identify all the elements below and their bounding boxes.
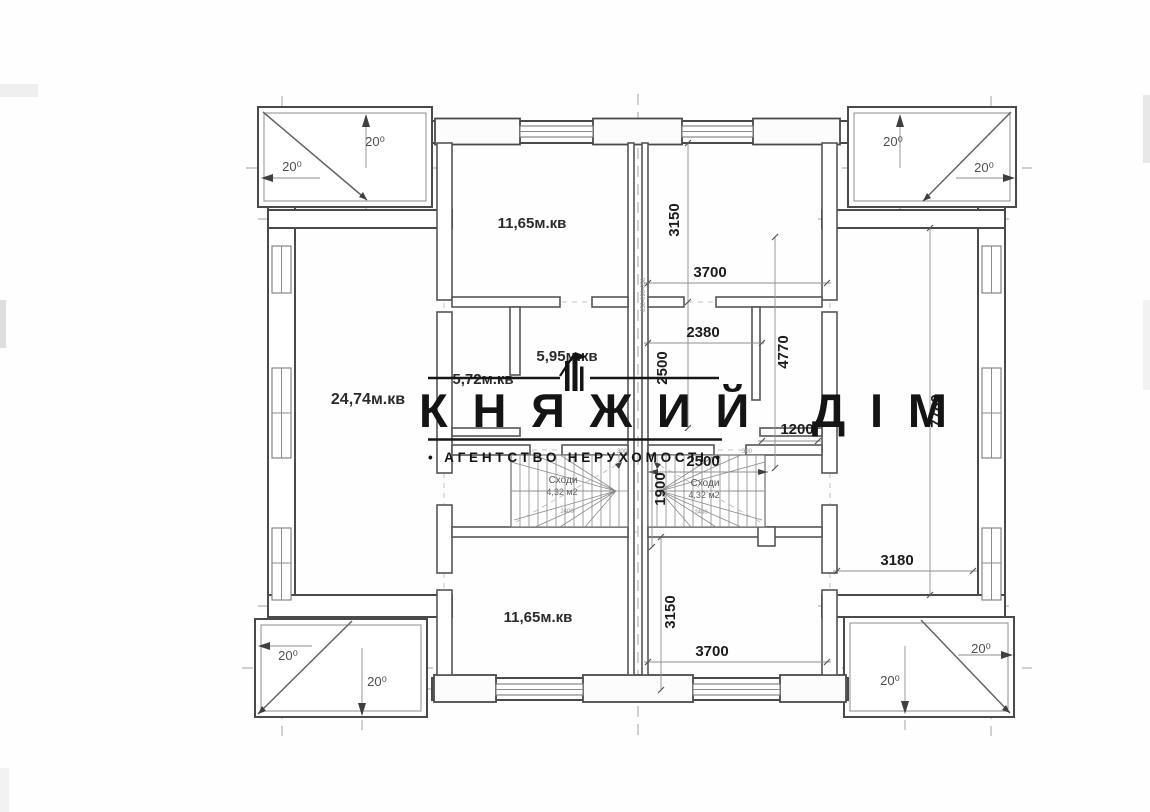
angle-top-left-b: 20⁰ bbox=[282, 159, 302, 174]
dim-300-right: 300 bbox=[742, 449, 753, 455]
balcony-top-right bbox=[848, 107, 1016, 207]
dim-3180: 3180 bbox=[880, 552, 913, 569]
angle-bottom-right-a: 20⁰ bbox=[880, 673, 900, 688]
angle-top-right-b: 20⁰ bbox=[974, 160, 994, 175]
dim-2500-vertical: 2500 bbox=[654, 351, 671, 384]
dim-chain-small: 050-090-050 bbox=[641, 277, 647, 312]
floor-plan-canvas: 3150 3700 2380 2500 4770 1200 2500 1900 … bbox=[0, 0, 1150, 812]
room-label-bedroom-top: 11,65м.кв bbox=[498, 215, 567, 232]
angle-bottom-left-a: 20⁰ bbox=[278, 648, 298, 663]
floor-plan-page: 3150 3700 2380 2500 4770 1200 2500 1900 … bbox=[0, 0, 1150, 812]
dim-4770: 4770 bbox=[775, 335, 792, 368]
stairs-left-label: Сходи bbox=[549, 475, 578, 486]
angle-bottom-left-b: 20⁰ bbox=[367, 674, 387, 689]
stairs-right-label: Сходи bbox=[691, 478, 720, 489]
angle-top-right-a: 20⁰ bbox=[883, 134, 903, 149]
angle-top-left-a: 20⁰ bbox=[365, 134, 385, 149]
stairs-right-width: 2400 bbox=[694, 510, 708, 516]
dim-3700-top: 3700 bbox=[693, 264, 726, 281]
dim-3700-bottom: 3700 bbox=[695, 643, 728, 660]
stairs-right-area: 4,32 м2 bbox=[688, 490, 719, 500]
balcony-bottom-right bbox=[844, 617, 1014, 717]
dim-3150-top: 3150 bbox=[666, 203, 683, 236]
angle-bottom-right-b: 20⁰ bbox=[971, 641, 991, 656]
balcony-bottom-left bbox=[255, 619, 427, 717]
dim-2380: 2380 bbox=[686, 324, 719, 341]
watermark-subtitle: • АГЕНТСТВО НЕРУХОМОСТІ • bbox=[428, 450, 720, 465]
room-label-bedroom-bottom: 11,65м.кв bbox=[504, 609, 573, 626]
watermark-title: КНЯЖИЙ ДІМ bbox=[419, 384, 947, 437]
stairs-left-area: 4,32 м2 bbox=[546, 487, 577, 497]
dim-1900: 1900 bbox=[652, 472, 669, 505]
dim-3150-bottom: 3150 bbox=[662, 595, 679, 628]
balcony-top-left bbox=[258, 107, 432, 207]
stairs-left-width: 2400 bbox=[560, 509, 574, 515]
room-label-living: 24,74м.кв bbox=[331, 391, 405, 408]
